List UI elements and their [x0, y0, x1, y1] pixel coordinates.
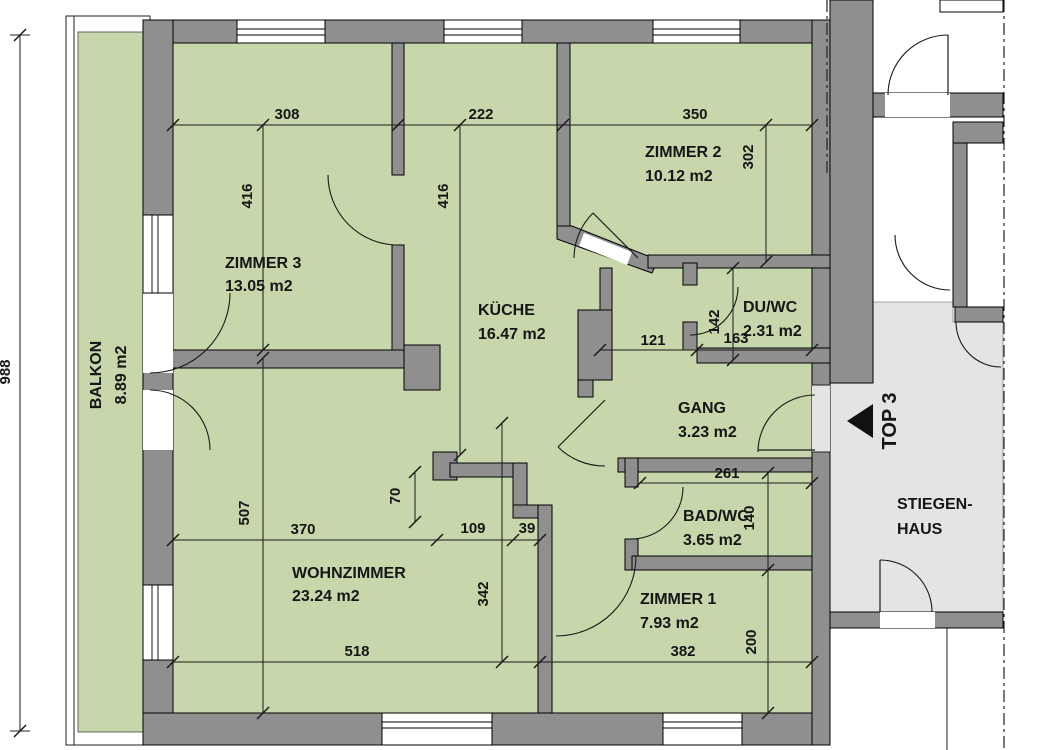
room-area-duwc: 2.31 m2 [743, 323, 802, 340]
wall-zimmer3-wohnzimmer [143, 350, 440, 368]
wall-duwc-north [648, 255, 830, 268]
wall-stairwell-thick [830, 0, 873, 383]
wall-duwc-west-b [683, 322, 697, 350]
dim-140: 140 [741, 505, 758, 530]
wall-right [812, 20, 830, 745]
dim-70: 70 [387, 488, 404, 505]
dim-342: 342 [475, 581, 492, 606]
wall-shaft-west [953, 143, 967, 307]
window-kueche [444, 20, 522, 43]
dim-121: 121 [640, 332, 665, 349]
dim-416-kueche: 416 [435, 183, 452, 208]
room-area-wohnzimmer: 23.24 m2 [292, 588, 360, 605]
stairwell-door-gap [880, 612, 935, 628]
window-zimmer1-south [663, 713, 742, 745]
dim-370: 370 [290, 521, 315, 538]
window-zimmer2 [653, 20, 740, 43]
dim-382: 382 [670, 643, 695, 660]
window-wohnzimmer-south [382, 713, 492, 745]
room-label-zimmer2: ZIMMER 2 [645, 144, 722, 161]
room-label-balkon: BALKON [88, 341, 105, 409]
floorplan-canvas: ZIMMER 3 13.05 m2 KÜCHE 16.47 m2 ZIMMER … [0, 0, 1042, 750]
dim-163: 163 [723, 330, 748, 347]
balcony-door-gap-wohnzimmer [143, 390, 173, 450]
wall-kueche-step-2 [450, 463, 520, 477]
wall-corner-block [404, 345, 440, 390]
dim-416-zimmer3: 416 [239, 183, 256, 208]
wall-gang-pillar-step [578, 380, 593, 397]
dim-142: 142 [706, 309, 723, 334]
dim-518: 518 [344, 643, 369, 660]
room-label-gang: GANG [678, 400, 726, 417]
wall-duwc-west-a [683, 263, 697, 285]
room-area-badwc: 3.65 m2 [683, 532, 742, 549]
wall-badwc-south [632, 556, 812, 570]
door-arc-landing [895, 235, 950, 290]
wall-zimmer2-west [557, 43, 570, 228]
dim-507: 507 [236, 500, 253, 525]
balcony-door-gap-zimmer3 [143, 293, 173, 373]
room-area-balkon: 8.89 m2 [113, 346, 130, 405]
apartment-floor [157, 30, 820, 725]
wall-shaft-bottom [955, 307, 1003, 322]
neighbor-door-gap [885, 93, 950, 117]
neighbor-wall-stub [940, 0, 1003, 12]
dim-200: 200 [743, 629, 760, 654]
door-arc-neighbor [888, 35, 948, 95]
floorplan-drawing: ZIMMER 3 13.05 m2 KÜCHE 16.47 m2 ZIMMER … [0, 0, 1042, 750]
wall-zimmer3-kueche-lower [392, 245, 404, 352]
dim-988: 988 [0, 359, 14, 384]
room-area-zimmer3: 13.05 m2 [225, 278, 293, 295]
room-label-duwc: DU/WC [743, 299, 798, 316]
wall-shaft-top [953, 122, 1003, 143]
room-label-stiegenhaus-1: STIEGEN- [897, 496, 973, 513]
dim-222: 222 [468, 106, 493, 123]
room-label-wohnzimmer: WOHNZIMMER [292, 565, 406, 582]
room-label-zimmer3: ZIMMER 3 [225, 255, 302, 272]
dim-261: 261 [714, 465, 739, 482]
dim-39: 39 [519, 520, 536, 537]
room-label-zimmer1: ZIMMER 1 [640, 591, 717, 608]
wall-badwc-west-a [625, 458, 638, 487]
unit-label-top3: TOP 3 [879, 392, 901, 449]
wall-gang-stub [600, 268, 612, 310]
wall-gang-pillar [578, 310, 612, 380]
room-label-stiegenhaus-2: HAUS [897, 521, 943, 538]
room-label-badwc: BAD/WC [683, 508, 749, 525]
dim-302: 302 [740, 144, 757, 169]
dim-350: 350 [682, 106, 707, 123]
room-area-zimmer1: 7.93 m2 [640, 615, 699, 632]
room-area-kueche: 16.47 m2 [478, 326, 546, 343]
wall-zimmer3-kueche-upper [392, 43, 404, 175]
room-area-gang: 3.23 m2 [678, 424, 737, 441]
dim-109: 109 [460, 520, 485, 537]
dim-308: 308 [274, 106, 299, 123]
window-zimmer3 [237, 20, 325, 43]
room-label-kueche: KÜCHE [478, 300, 535, 319]
wall-wohnzimmer-zimmer1 [538, 505, 552, 713]
room-area-zimmer2: 10.12 m2 [645, 168, 713, 185]
